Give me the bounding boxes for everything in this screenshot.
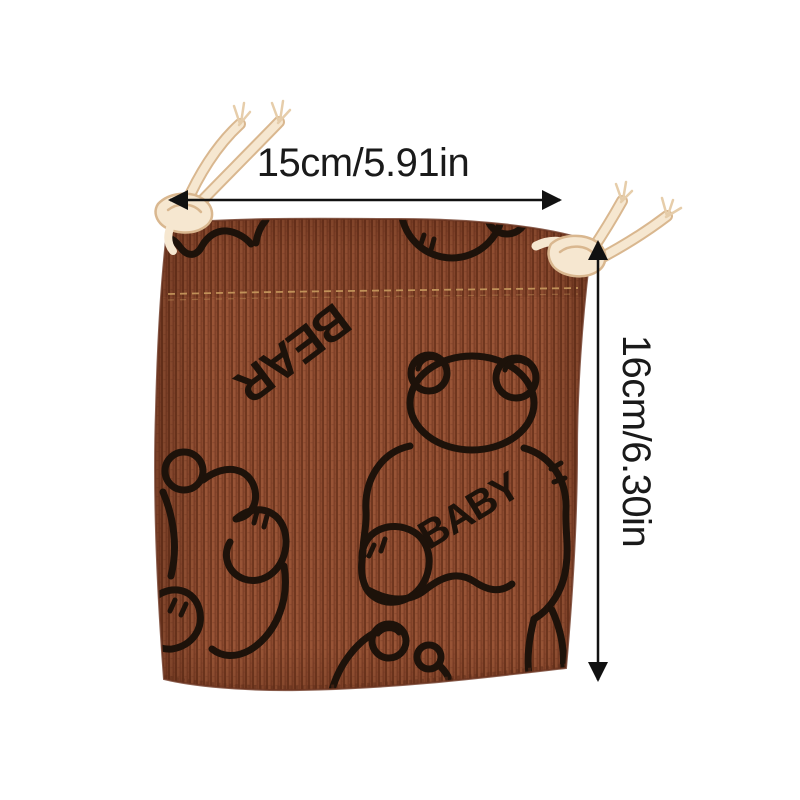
claw-tick <box>254 512 257 523</box>
product-photo-svg: BEAR BABY <box>0 0 800 800</box>
claw-tick <box>264 516 267 527</box>
height-dimension-label: 16cm/6.30in <box>614 335 658 547</box>
width-dimension-label: 15cm/5.91in <box>257 141 469 185</box>
knot-left-tail <box>168 228 173 251</box>
drawstring-right <box>536 182 681 276</box>
drawstring-bag: BEAR BABY <box>140 156 610 710</box>
stitch-tick <box>431 239 434 250</box>
product-image-canvas: BEAR BABY <box>0 0 800 800</box>
